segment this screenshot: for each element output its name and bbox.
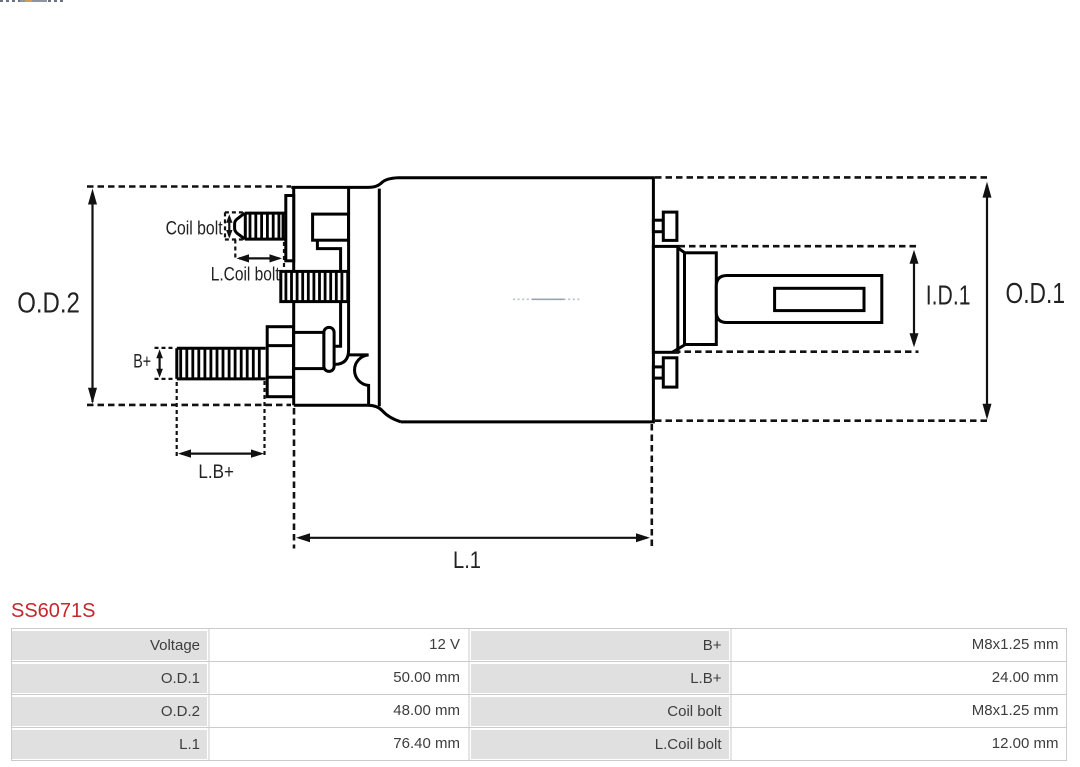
svg-text:L.B+: L.B+: [198, 462, 234, 483]
svg-text:O.D.1: O.D.1: [1006, 278, 1066, 310]
svg-text:O.D.2: O.D.2: [17, 288, 80, 320]
svg-text:I.D.1: I.D.1: [926, 280, 971, 311]
svg-text:L.1: L.1: [453, 547, 481, 574]
svg-text:B+: B+: [133, 352, 151, 373]
svg-text:L.Coil bolt: L.Coil bolt: [211, 265, 281, 286]
svg-text:Coil bolt: Coil bolt: [166, 219, 224, 240]
